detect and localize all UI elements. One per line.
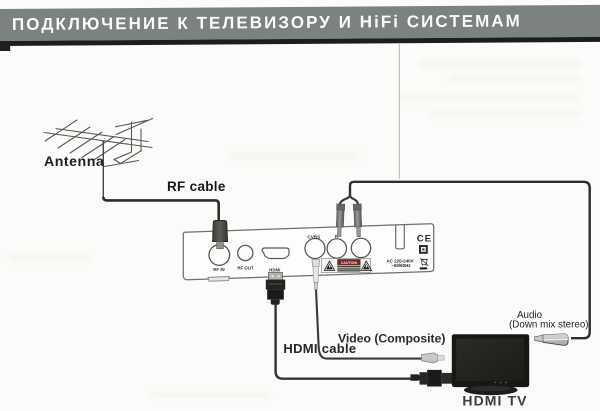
svg-text:Antenna: Antenna (44, 154, 104, 170)
svg-text:(Down mix stereo): (Down mix stereo) (509, 320, 588, 331)
svg-text:CE: CE (417, 233, 432, 244)
svg-text:CVBS: CVBS (307, 235, 320, 240)
svg-text:HDMI TV: HDMI TV (462, 393, 527, 409)
svg-text:Video (Composite): Video (Composite) (338, 332, 445, 346)
svg-text:RF IN: RF IN (213, 267, 224, 272)
svg-text:RF OUT: RF OUT (237, 266, 254, 271)
svg-text:CAUTION: CAUTION (341, 261, 358, 265)
svg-text:RF cable: RF cable (167, 179, 226, 194)
svg-text:~50/60Hz: ~50/60Hz (391, 263, 411, 268)
svg-text:HDMI: HDMI (269, 268, 280, 273)
